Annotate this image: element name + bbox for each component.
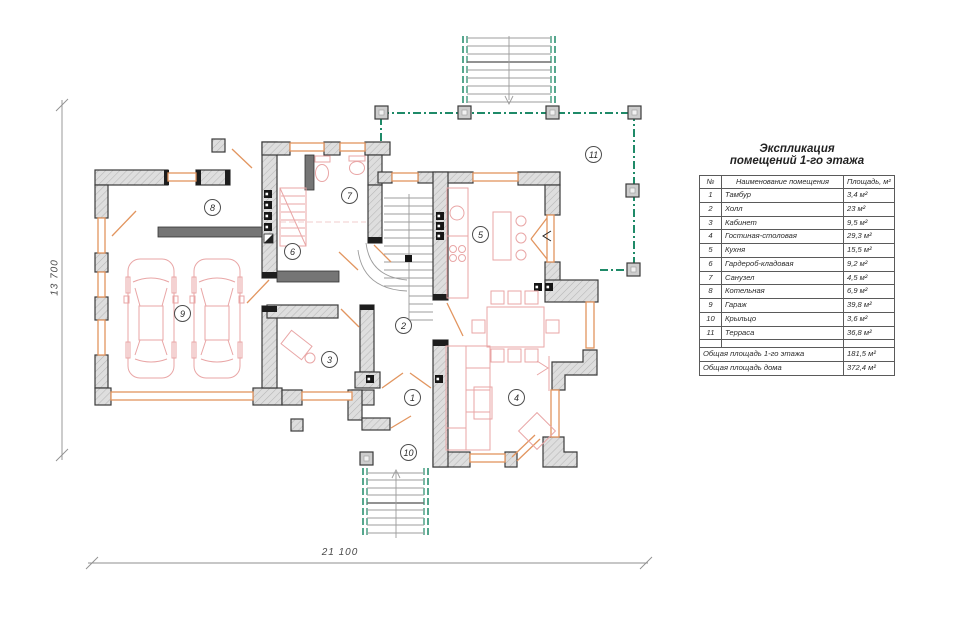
legend-cell-num: 5 [700, 244, 722, 258]
legend-row: 9Гараж39,8 м² [700, 299, 895, 313]
legend-cell-area: 4,5 м² [844, 271, 895, 285]
legend-cell-num: 8 [700, 285, 722, 299]
legend-cell-name: Гардероб-кладовая [722, 257, 844, 271]
terrace-stairs [463, 36, 555, 108]
legend-header-area: Площадь, м² [844, 175, 895, 189]
legend-cell-num: 10 [700, 312, 722, 326]
legend-cell-name: Санузел [722, 271, 844, 285]
legend-cell-num: 3 [700, 216, 722, 230]
legend-cell-name: Крыльцо [722, 312, 844, 326]
horizontal-dimension-label: 21 100 [280, 547, 400, 558]
legend-cell-num: 1 [700, 189, 722, 203]
legend-total-area: 181,5 м² [844, 348, 895, 362]
legend-cell-name: Гостиная-столовая [722, 230, 844, 244]
legend-cell-num: 11 [700, 326, 722, 340]
legend-cell-area: 15,5 м² [844, 244, 895, 258]
legend: Экспликация помещений 1-го этажа № Наиме… [699, 143, 895, 376]
legend-cell-num: 7 [700, 271, 722, 285]
legend-title-line1: Экспликация [699, 143, 895, 155]
legend-total-label: Общая площадь 1-го этажа [700, 348, 844, 362]
legend-cell-name: Холл [722, 203, 844, 217]
legend-cell-num: 4 [700, 230, 722, 244]
legend-header-row: № Наименование помещения Площадь, м² [700, 175, 895, 189]
legend-row: 4Гостиная-столовая29,3 м² [700, 230, 895, 244]
legend-cell-num: 6 [700, 257, 722, 271]
legend-cell-name: Кабинет [722, 216, 844, 230]
legend-cell-area: 9,2 м² [844, 257, 895, 271]
legend-row: 2Холл23 м² [700, 203, 895, 217]
legend-header-name: Наименование помещения [722, 175, 844, 189]
legend-row: 1Тамбур3,4 м² [700, 189, 895, 203]
legend-row: 5Кухня15,5 м² [700, 244, 895, 258]
legend-cell-name: Тамбур [722, 189, 844, 203]
legend-table: № Наименование помещения Площадь, м² 1Та… [699, 175, 895, 376]
legend-cell-name: Кухня [722, 244, 844, 258]
legend-cell-area: 39,8 м² [844, 299, 895, 313]
legend-cell-area: 6,9 м² [844, 285, 895, 299]
legend-cell-name: Котельная [722, 285, 844, 299]
porch-stairs [363, 468, 428, 538]
legend-row: 11Терраса36,8 м² [700, 326, 895, 340]
legend-total-row: Общая площадь 1-го этажа181,5 м² [700, 348, 895, 362]
floor-plan-page: 1 2 3 4 5 6 7 8 9 10 11 13 700 21 100 Эк… [0, 0, 960, 624]
legend-spacer-row [700, 340, 895, 348]
room-marker-5: 5 [472, 226, 489, 243]
legend-cell-area: 3,6 м² [844, 312, 895, 326]
room-marker-4: 4 [508, 389, 525, 406]
legend-spacer-cell [844, 340, 895, 348]
legend-cell-num: 2 [700, 203, 722, 217]
legend-cell-num: 9 [700, 299, 722, 313]
legend-row: 10Крыльцо3,6 м² [700, 312, 895, 326]
legend-header-num: № [700, 175, 722, 189]
room-marker-2: 2 [395, 317, 412, 334]
legend-row: 6Гардероб-кладовая9,2 м² [700, 257, 895, 271]
legend-total-area: 372,4 м² [844, 361, 895, 375]
room-marker-8: 8 [204, 199, 221, 216]
legend-total-label: Общая площадь дома [700, 361, 844, 375]
room-marker-9: 9 [174, 305, 191, 322]
legend-cell-name: Терраса [722, 326, 844, 340]
legend-row: 7Санузел4,5 м² [700, 271, 895, 285]
legend-cell-area: 3,4 м² [844, 189, 895, 203]
doors-layer [112, 149, 547, 428]
legend-cell-area: 36,8 м² [844, 326, 895, 340]
legend-title: Экспликация помещений 1-го этажа [699, 143, 895, 168]
room-marker-11: 11 [585, 146, 602, 163]
legend-cell-area: 29,3 м² [844, 230, 895, 244]
legend-spacer-cell [700, 340, 722, 348]
legend-title-line2: помещений 1-го этажа [699, 155, 895, 167]
vertical-dimension-label: 13 700 [50, 243, 61, 313]
legend-row: 8Котельная6,9 м² [700, 285, 895, 299]
room-marker-7: 7 [341, 187, 358, 204]
room-marker-6: 6 [284, 243, 301, 260]
legend-cell-area: 23 м² [844, 203, 895, 217]
room-marker-10: 10 [400, 444, 417, 461]
legend-cell-name: Гараж [722, 299, 844, 313]
legend-cell-area: 9,5 м² [844, 216, 895, 230]
room-marker-1: 1 [404, 389, 421, 406]
legend-row: 3Кабинет9,5 м² [700, 216, 895, 230]
legend-total-row: Общая площадь дома372,4 м² [700, 361, 895, 375]
legend-spacer-cell [722, 340, 844, 348]
room-marker-3: 3 [321, 351, 338, 368]
